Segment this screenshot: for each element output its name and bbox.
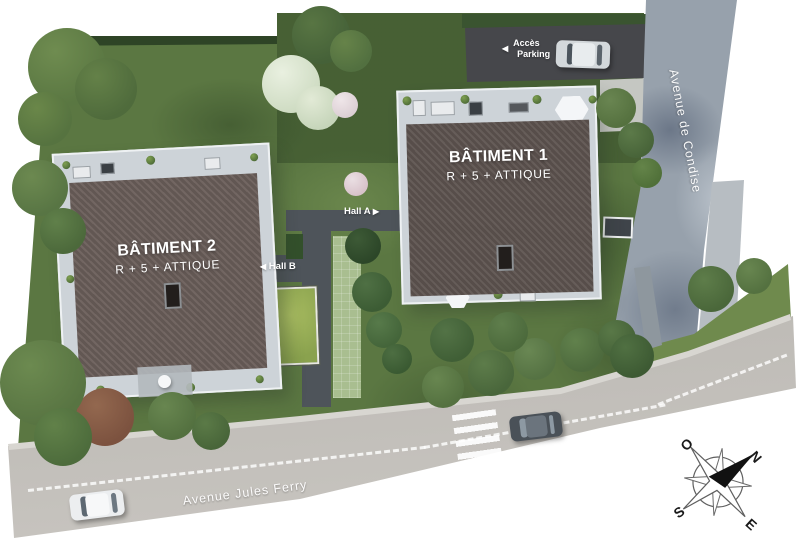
hall-a-text: Hall A: [344, 206, 370, 217]
tree: [430, 318, 474, 362]
batiment-1-roof: BÂTIMENT 1 R + 5 + ATTIQUE: [406, 120, 593, 297]
roof-plant: [146, 155, 155, 164]
tree: [330, 30, 372, 72]
car-rear-window: [597, 45, 603, 66]
flowering-tree: [332, 92, 358, 118]
rooftop-unit: [100, 163, 115, 175]
tree: [610, 334, 654, 378]
batiment-1-subtitle: R + 5 + ATTIQUE: [407, 166, 590, 185]
acces-line2: Parking: [513, 49, 550, 60]
batiment-1: BÂTIMENT 1 R + 5 + ATTIQUE: [396, 85, 602, 304]
tree: [192, 412, 230, 450]
car-rear-window: [548, 415, 555, 434]
bush: [382, 344, 412, 374]
roof-plant: [256, 375, 264, 383]
flowering-tree: [344, 172, 368, 196]
bush: [352, 272, 392, 312]
tree: [632, 158, 662, 188]
rooftop-unit: [72, 166, 91, 179]
acces-parking-label: ◀ Accès Parking: [502, 38, 550, 60]
tree: [40, 208, 86, 254]
patio-table: [158, 375, 172, 389]
arrow-left-icon: ◀: [502, 44, 508, 54]
tree: [34, 408, 92, 466]
car-parking: [556, 40, 611, 69]
roof-plant: [532, 95, 541, 104]
tree: [736, 258, 772, 294]
roof-plant: [62, 161, 70, 169]
tree: [688, 266, 734, 312]
arrow-left-icon: ◀: [260, 262, 266, 271]
rooftop-unit: [412, 100, 425, 116]
tree: [18, 92, 72, 146]
tree: [148, 392, 196, 440]
tree: [468, 350, 514, 396]
bush: [345, 228, 381, 264]
tree: [75, 58, 137, 120]
hall-b-label: ◀ Hall B: [260, 261, 296, 272]
hedge-center: [286, 234, 303, 259]
batiment-1-title: BÂTIMENT 1: [407, 146, 590, 169]
compass-rose: N O S E: [666, 430, 770, 534]
rooftop-unit: [204, 157, 221, 170]
car-roof: [85, 493, 110, 517]
compass-n: N: [746, 448, 765, 466]
hall-a-label: Hall A ▶: [344, 206, 379, 217]
tree: [422, 366, 464, 408]
tree: [618, 122, 654, 158]
roof-plant: [250, 153, 258, 161]
roof-plant: [402, 96, 411, 105]
batiment-2-roof: BÂTIMENT 2 R + 5 + ATTIQUE: [69, 173, 267, 378]
crosswalk: [452, 409, 502, 463]
compass-e: E: [743, 515, 761, 533]
tree: [488, 312, 528, 352]
car-roof: [524, 415, 548, 439]
car-rear-window: [111, 493, 118, 513]
roof-plant: [588, 95, 596, 103]
rooftop-unit: [431, 101, 455, 116]
roof-hatch-icon: [496, 245, 514, 271]
rooftop-unit: [509, 102, 529, 113]
compass-s: S: [670, 503, 687, 521]
rooftop-unit: [469, 101, 483, 115]
car-roof: [572, 43, 595, 66]
batiment-2: BÂTIMENT 2 R + 5 + ATTIQUE: [52, 142, 283, 400]
roof-hatch-icon: [164, 282, 182, 309]
bush: [366, 312, 402, 348]
utility-box: [603, 216, 634, 238]
site-plan: BÂTIMENT 2 R + 5 + ATTIQUE BÂTIMENT 1: [0, 0, 800, 548]
hall-b-text: Hall B: [269, 261, 296, 272]
acces-line1: Accès: [513, 38, 550, 49]
arrow-right-icon: ▶: [373, 207, 379, 216]
